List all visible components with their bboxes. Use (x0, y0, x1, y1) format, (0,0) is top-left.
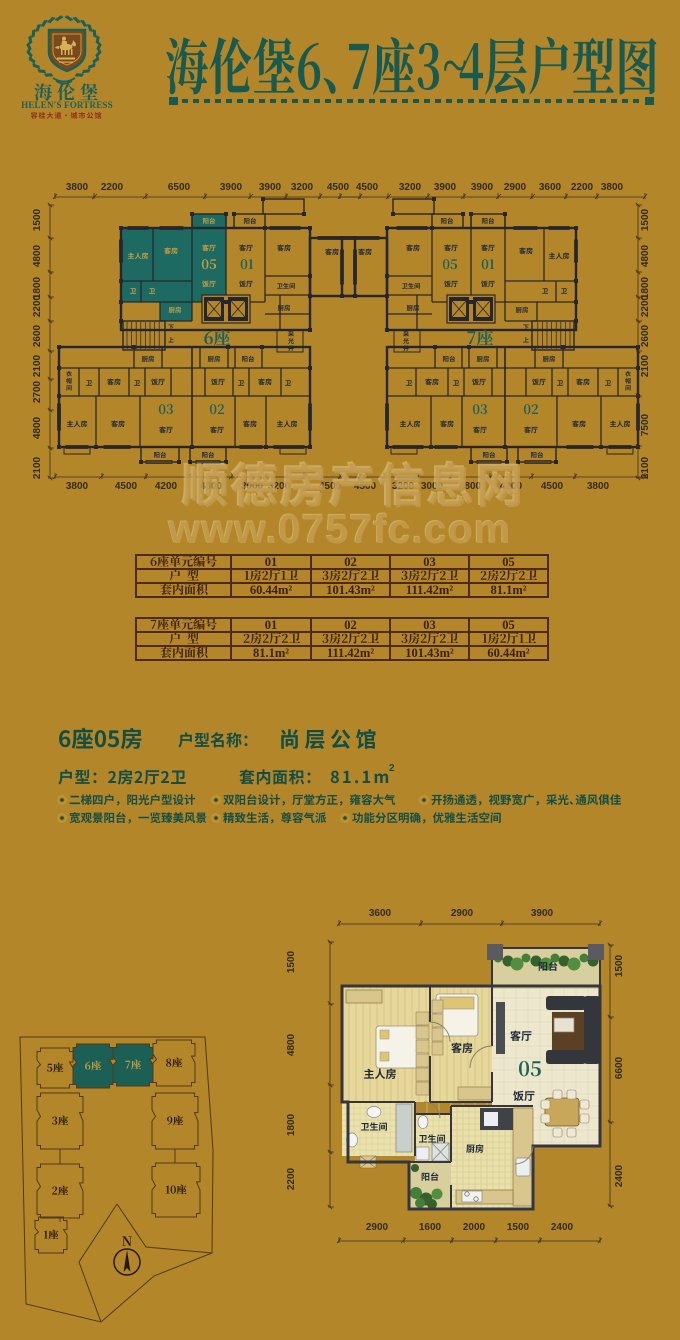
svg-text:2400: 2400 (551, 1222, 574, 1233)
svg-text:1800: 1800 (286, 1113, 297, 1136)
svg-text:2400: 2400 (614, 1164, 625, 1187)
svg-text:2000: 2000 (463, 1222, 486, 1233)
svg-text:3600: 3600 (369, 908, 392, 919)
svg-text:2200: 2200 (286, 1167, 297, 1190)
svg-text:2900: 2900 (451, 908, 474, 919)
svg-text:2: 2 (389, 763, 395, 774)
svg-text:1500: 1500 (614, 954, 625, 977)
svg-text:1500: 1500 (507, 1222, 530, 1233)
svg-text:3900: 3900 (531, 908, 554, 919)
svg-text:6600: 6600 (614, 1056, 625, 1079)
svg-text:1500: 1500 (286, 950, 297, 973)
svg-text:2900: 2900 (366, 1222, 389, 1233)
svg-text:1600: 1600 (419, 1222, 442, 1233)
svg-text:4800: 4800 (286, 1033, 297, 1056)
